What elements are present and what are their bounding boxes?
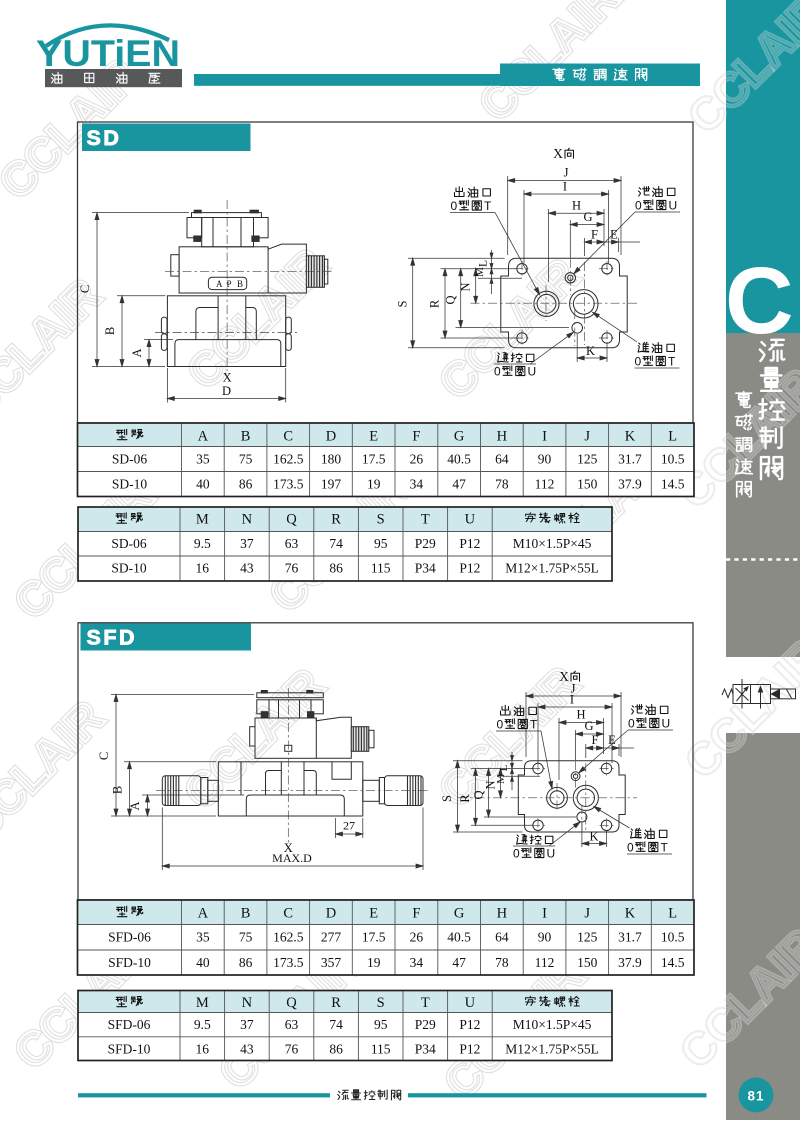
svg-text:35: 35: [196, 452, 210, 467]
svg-text:17.5: 17.5: [362, 452, 386, 467]
svg-text:SD-10: SD-10: [111, 561, 147, 576]
svg-text:B: B: [241, 429, 251, 445]
svg-text:L: L: [668, 906, 677, 922]
svg-text:YUTiEN: YUTiEN: [36, 33, 180, 74]
svg-text:277: 277: [321, 930, 342, 945]
svg-text:G: G: [454, 429, 465, 445]
svg-text:E: E: [369, 906, 378, 922]
svg-text:Q: Q: [286, 995, 297, 1011]
svg-text:A: A: [198, 429, 209, 445]
svg-text:34: 34: [410, 477, 424, 492]
svg-text:90: 90: [538, 452, 552, 467]
svg-text:17.5: 17.5: [362, 930, 386, 945]
svg-text:SD-10: SD-10: [112, 477, 148, 492]
svg-text:M10×1.5P×45: M10×1.5P×45: [513, 1017, 592, 1032]
svg-text:64: 64: [495, 452, 509, 467]
svg-text:19: 19: [367, 477, 381, 492]
svg-text:R: R: [458, 794, 472, 803]
svg-text:16: 16: [196, 561, 210, 576]
svg-text:125: 125: [577, 930, 598, 945]
svg-text:0: 0: [497, 718, 504, 732]
svg-text:T: T: [530, 718, 538, 732]
svg-text:0: 0: [635, 355, 642, 369]
svg-text:R: R: [331, 512, 341, 528]
svg-text:G: G: [454, 906, 465, 922]
svg-text:M: M: [495, 774, 507, 784]
svg-text:N: N: [459, 282, 473, 291]
svg-text:Q: Q: [444, 295, 458, 304]
svg-text:H: H: [497, 906, 508, 922]
svg-text:K: K: [625, 906, 636, 922]
svg-text:9.5: 9.5: [194, 536, 211, 551]
svg-text:I: I: [542, 429, 547, 445]
svg-text:112: 112: [535, 477, 555, 492]
svg-text:162.5: 162.5: [273, 452, 304, 467]
svg-text:86: 86: [329, 1041, 343, 1056]
svg-text:74: 74: [329, 1017, 343, 1032]
svg-text:U: U: [662, 717, 671, 731]
svg-text:A: A: [216, 279, 223, 289]
svg-text:16: 16: [196, 1041, 210, 1056]
svg-text:I: I: [570, 693, 574, 707]
svg-text:T: T: [421, 995, 430, 1011]
svg-text:173.5: 173.5: [273, 955, 304, 970]
svg-text:S: S: [377, 995, 385, 1011]
svg-text:S: S: [396, 300, 410, 307]
svg-text:D: D: [326, 906, 336, 922]
svg-text:P12: P12: [459, 1041, 480, 1056]
svg-text:0: 0: [635, 199, 642, 213]
svg-text:A: A: [130, 348, 144, 357]
svg-text:K: K: [625, 429, 636, 445]
svg-text:10.5: 10.5: [661, 452, 685, 467]
svg-text:SFD-10: SFD-10: [108, 1041, 151, 1056]
svg-text:H: H: [572, 199, 581, 213]
svg-text:P12: P12: [459, 561, 480, 576]
svg-text:357: 357: [321, 955, 342, 970]
svg-text:37: 37: [240, 1017, 254, 1032]
svg-text:37.9: 37.9: [618, 477, 642, 492]
svg-text:SFD-06: SFD-06: [108, 930, 151, 945]
svg-text:150: 150: [577, 477, 598, 492]
svg-text:B: B: [237, 279, 243, 289]
svg-text:43: 43: [240, 1041, 254, 1056]
svg-text:J: J: [584, 429, 590, 445]
svg-text:14.5: 14.5: [661, 955, 685, 970]
svg-text:63: 63: [285, 1017, 299, 1032]
svg-text:75: 75: [239, 452, 253, 467]
svg-text:M: M: [196, 995, 209, 1011]
svg-text:E: E: [610, 228, 618, 242]
svg-text:43: 43: [240, 561, 254, 576]
svg-text:95: 95: [374, 1017, 388, 1032]
svg-text:14.5: 14.5: [661, 477, 685, 492]
svg-text:74: 74: [329, 536, 343, 551]
svg-text:C: C: [78, 285, 92, 293]
svg-text:K: K: [589, 830, 598, 844]
svg-text:P29: P29: [415, 536, 436, 551]
svg-text:35: 35: [196, 930, 210, 945]
svg-text:81: 81: [747, 1089, 764, 1104]
svg-text:90: 90: [538, 930, 552, 945]
svg-text:115: 115: [371, 561, 391, 576]
svg-text:63: 63: [285, 536, 299, 551]
svg-text:40: 40: [196, 477, 210, 492]
svg-text:26: 26: [410, 452, 424, 467]
svg-text:0: 0: [513, 847, 520, 861]
svg-text:U: U: [528, 365, 537, 379]
svg-text:31.7: 31.7: [618, 930, 642, 945]
svg-text:180: 180: [321, 452, 342, 467]
svg-text:SD-06: SD-06: [111, 536, 147, 551]
svg-text:S: S: [440, 795, 454, 802]
svg-text:Q: Q: [472, 790, 486, 799]
svg-text:X: X: [559, 669, 569, 684]
svg-text:37.9: 37.9: [618, 955, 642, 970]
svg-text:95: 95: [374, 536, 388, 551]
svg-text:A: A: [198, 906, 209, 922]
svg-text:112: 112: [535, 955, 555, 970]
svg-text:37: 37: [240, 536, 254, 551]
svg-text:10.5: 10.5: [661, 930, 685, 945]
svg-text:J: J: [564, 166, 569, 180]
svg-text:115: 115: [371, 1041, 391, 1056]
svg-text:B: B: [103, 327, 117, 335]
svg-text:MAX.D: MAX.D: [272, 851, 312, 865]
svg-text:N: N: [242, 512, 253, 528]
svg-text:40.5: 40.5: [447, 452, 471, 467]
svg-text:0: 0: [627, 841, 634, 855]
svg-text:86: 86: [239, 477, 253, 492]
svg-text:T: T: [661, 841, 669, 855]
svg-text:C: C: [97, 752, 111, 760]
svg-text:F: F: [592, 733, 599, 747]
svg-text:Q: Q: [286, 512, 297, 528]
svg-text:A: A: [128, 801, 142, 810]
svg-text:S: S: [377, 512, 385, 528]
svg-text:H: H: [497, 429, 508, 445]
svg-text:G: G: [584, 719, 593, 733]
svg-text:R: R: [428, 299, 442, 308]
svg-text:P12: P12: [459, 1017, 480, 1032]
svg-text:P34: P34: [415, 1041, 436, 1056]
svg-text:125: 125: [577, 452, 598, 467]
svg-text:U: U: [669, 199, 678, 213]
svg-text:D: D: [222, 384, 231, 398]
svg-text:86: 86: [329, 561, 343, 576]
svg-text:76: 76: [285, 561, 299, 576]
svg-text:SD-06: SD-06: [112, 452, 148, 467]
svg-text:173.5: 173.5: [273, 477, 304, 492]
svg-text:J: J: [584, 906, 590, 922]
svg-text:150: 150: [577, 955, 598, 970]
svg-text:K: K: [586, 344, 595, 358]
svg-text:SFD: SFD: [87, 626, 138, 650]
svg-text:U: U: [547, 847, 556, 861]
svg-text:E: E: [369, 429, 378, 445]
svg-text:M: M: [474, 267, 486, 277]
svg-text:E: E: [608, 733, 616, 747]
svg-text:78: 78: [495, 955, 509, 970]
svg-text:40: 40: [196, 955, 210, 970]
svg-text:75: 75: [239, 930, 253, 945]
svg-text:0: 0: [451, 199, 458, 213]
svg-text:47: 47: [452, 477, 466, 492]
svg-text:SD: SD: [87, 126, 122, 150]
svg-text:P12: P12: [459, 536, 480, 551]
svg-text:9.5: 9.5: [194, 1017, 211, 1032]
svg-text:19: 19: [367, 955, 381, 970]
svg-text:F: F: [591, 228, 598, 242]
svg-text:64: 64: [495, 930, 509, 945]
svg-text:R: R: [331, 995, 341, 1011]
svg-text:B: B: [241, 906, 251, 922]
svg-text:L: L: [668, 429, 677, 445]
svg-text:86: 86: [239, 955, 253, 970]
svg-text:P34: P34: [415, 561, 436, 576]
svg-text:C: C: [283, 429, 293, 445]
svg-text:T: T: [668, 355, 676, 369]
svg-text:M10×1.5P×45: M10×1.5P×45: [513, 536, 592, 551]
svg-text:34: 34: [410, 955, 424, 970]
svg-text:27: 27: [343, 819, 355, 833]
svg-text:M12×1.75P×55L: M12×1.75P×55L: [505, 1041, 599, 1056]
svg-text:47: 47: [452, 955, 466, 970]
svg-text:0: 0: [628, 717, 635, 731]
svg-text:40.5: 40.5: [447, 930, 471, 945]
svg-text:X: X: [553, 146, 563, 161]
svg-text:0: 0: [494, 365, 501, 379]
svg-text:M: M: [196, 512, 209, 528]
svg-text:SFD-10: SFD-10: [108, 955, 151, 970]
svg-text:I: I: [542, 906, 547, 922]
svg-text:26: 26: [410, 930, 424, 945]
svg-text:X: X: [223, 371, 232, 385]
svg-text:F: F: [412, 906, 420, 922]
svg-text:31.7: 31.7: [618, 452, 642, 467]
svg-text:162.5: 162.5: [273, 930, 304, 945]
svg-text:T: T: [484, 199, 492, 213]
svg-text:N: N: [242, 995, 253, 1011]
svg-text:U: U: [465, 995, 476, 1011]
svg-text:U: U: [465, 512, 476, 528]
svg-text:D: D: [326, 429, 336, 445]
svg-text:M12×1.75P×55L: M12×1.75P×55L: [505, 561, 599, 576]
svg-text:76: 76: [285, 1041, 299, 1056]
svg-text:SFD-06: SFD-06: [108, 1017, 151, 1032]
svg-text:L: L: [478, 260, 490, 267]
svg-text:G: G: [583, 210, 592, 224]
svg-text:C: C: [725, 248, 794, 354]
svg-text:78: 78: [495, 477, 509, 492]
svg-text:C: C: [283, 906, 293, 922]
svg-text:P29: P29: [415, 1017, 436, 1032]
svg-text:T: T: [421, 512, 430, 528]
svg-text:L: L: [498, 764, 510, 771]
svg-text:197: 197: [321, 477, 342, 492]
svg-text:B: B: [111, 786, 125, 794]
svg-text:I: I: [563, 180, 567, 194]
svg-text:F: F: [412, 429, 420, 445]
